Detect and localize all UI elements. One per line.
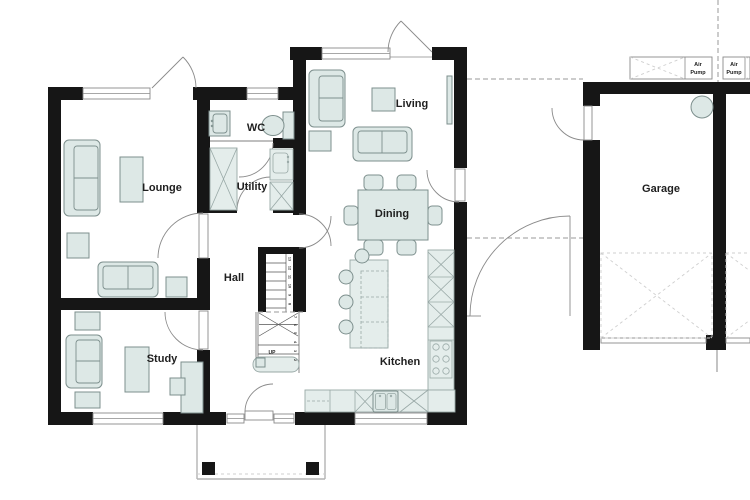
stair-step-number: 2 <box>293 359 297 361</box>
garage-zone-bay2-diag1 <box>726 253 750 271</box>
kitchen-sink <box>373 391 398 412</box>
door-study <box>165 311 208 350</box>
utility-appliance-stack <box>210 148 237 210</box>
garage-wall-west-upper <box>583 82 600 106</box>
room-label-utility: Utility <box>237 181 268 193</box>
air-pump-units: Air Pump Air Pump <box>630 57 750 79</box>
kitchen-stool <box>355 249 369 263</box>
room-label-living: Living <box>396 98 428 110</box>
wall-east-lower <box>454 202 467 425</box>
stair-step-number: 8 <box>288 303 292 305</box>
dining-chair <box>364 175 383 190</box>
garage-pier-left <box>583 337 600 350</box>
dining-chair <box>397 175 416 190</box>
study-desk-chair <box>170 378 185 395</box>
air-pump-label-line1: Air <box>694 62 703 68</box>
wall-top-center <box>193 87 247 100</box>
porch <box>197 425 325 479</box>
air-pump-label-line2: Pump <box>726 70 742 76</box>
garage-door-bay2 <box>726 338 750 343</box>
stair-step-number: 9 <box>288 294 292 296</box>
door-living-garden <box>388 21 432 52</box>
wall-stairs-top <box>258 247 306 254</box>
door-hall-dining-double <box>299 214 331 248</box>
door-dining-side <box>427 169 465 202</box>
window-study-south <box>93 413 163 424</box>
study-table-top <box>75 312 100 330</box>
lounge-side-table <box>166 277 187 297</box>
garage-walls <box>583 82 750 372</box>
study-sofa <box>66 335 102 388</box>
kitchen-island <box>350 260 388 348</box>
kitchen-fittings <box>305 249 455 412</box>
stair-step-number: 5 <box>293 332 297 334</box>
porch-post-right <box>306 462 319 475</box>
room-label-dining: Dining <box>375 208 409 220</box>
stair-up-label: UP <box>269 350 277 356</box>
living-sofa-left <box>309 70 345 127</box>
stair-treads-upper <box>266 254 286 312</box>
wall-lounge-wc-divider <box>197 100 210 213</box>
window-kitchen-south <box>355 413 427 424</box>
lounge-furniture <box>64 140 187 297</box>
kitchen-stool <box>339 320 353 334</box>
living-coffee-table <box>372 88 395 111</box>
lounge-coffee-table <box>120 157 143 202</box>
living-furniture <box>309 70 452 161</box>
utility-fittings <box>210 148 293 210</box>
utility-sink <box>270 149 293 180</box>
kitchen-tall-units <box>428 250 454 390</box>
window-lounge-north <box>83 88 150 99</box>
utility-appliance-under-counter <box>270 182 293 210</box>
room-label-hall: Hall <box>224 272 244 284</box>
living-side-table <box>309 131 331 151</box>
garage-wall-middle <box>713 94 726 335</box>
floor-plan-page: UP 13 12 11 10 9 8 7 6 5 4 3 2 <box>0 0 750 500</box>
garage-zone-bay2-diag2 <box>726 320 750 338</box>
stair-step-number: 6 <box>293 324 297 326</box>
air-pump-unit-right: Air Pump <box>723 57 750 79</box>
living-sofa-mid <box>353 127 412 161</box>
dining-chair <box>397 240 416 255</box>
wall-south-2 <box>163 412 226 425</box>
garage-contents <box>691 96 713 118</box>
room-label-garage: Garage <box>642 183 680 195</box>
living-tv-unit <box>447 76 452 124</box>
wall-west <box>48 87 61 425</box>
stair-step-number: 13 <box>288 257 292 261</box>
room-label-wc: WC <box>247 122 265 134</box>
door-front <box>227 384 294 423</box>
stair-winders <box>259 313 298 336</box>
door-garage-side <box>552 106 592 140</box>
air-pump-label-line1: Air <box>730 62 739 68</box>
stair-step-number: 3 <box>293 350 297 352</box>
study-furniture <box>66 312 203 413</box>
garage-door-zones <box>601 253 750 338</box>
wall-south-1 <box>48 412 93 425</box>
wall-stairs-west <box>258 247 266 312</box>
garden-gate <box>467 216 570 316</box>
wc-toilet <box>262 112 294 139</box>
floor-plan-drawing: UP 13 12 11 10 9 8 7 6 5 4 3 2 <box>0 0 750 500</box>
dining-chair <box>344 206 358 225</box>
wall-east-upper <box>454 47 467 168</box>
stair-step-number: 4 <box>293 341 297 344</box>
study-desk <box>125 347 149 392</box>
door-wc <box>239 143 273 177</box>
window-living-north <box>322 48 432 59</box>
lounge-corner-table <box>67 233 89 258</box>
stair-step-number: 7 <box>293 316 297 318</box>
door-lounge <box>158 213 208 258</box>
room-label-study: Study <box>147 353 178 365</box>
garage-wall-north <box>583 82 750 94</box>
garage-wall-west-lower <box>583 140 600 337</box>
stair-newel-post <box>256 358 265 367</box>
wall-stairs-east <box>293 247 306 312</box>
kitchen-stool <box>339 270 353 284</box>
stair-step-number: 12 <box>288 266 292 270</box>
air-pump-label-line2: Pump <box>690 70 706 76</box>
air-pump-unit-left: Air Pump <box>630 57 712 79</box>
porch-post-left <box>202 462 215 475</box>
dining-chair <box>428 206 442 225</box>
wall-lounge-study-divider <box>61 298 203 310</box>
wc-basin <box>209 111 230 136</box>
stair-step-number: 11 <box>288 275 292 279</box>
kitchen-stool <box>339 295 353 309</box>
stair-step-number: 10 <box>288 284 292 288</box>
room-label-kitchen: Kitchen <box>380 356 421 368</box>
wall-south-3 <box>295 412 355 425</box>
study-table-bottom <box>75 392 100 408</box>
garage-pier-right <box>706 335 726 350</box>
garage-cylinder <box>691 96 713 118</box>
garage-door-bay1 <box>601 338 706 343</box>
door-lounge-garden <box>152 57 196 88</box>
room-label-lounge: Lounge <box>142 182 182 194</box>
wall-hall-living-divider <box>293 47 306 215</box>
window-wc-north <box>247 88 278 99</box>
stair-handrail <box>256 312 264 364</box>
